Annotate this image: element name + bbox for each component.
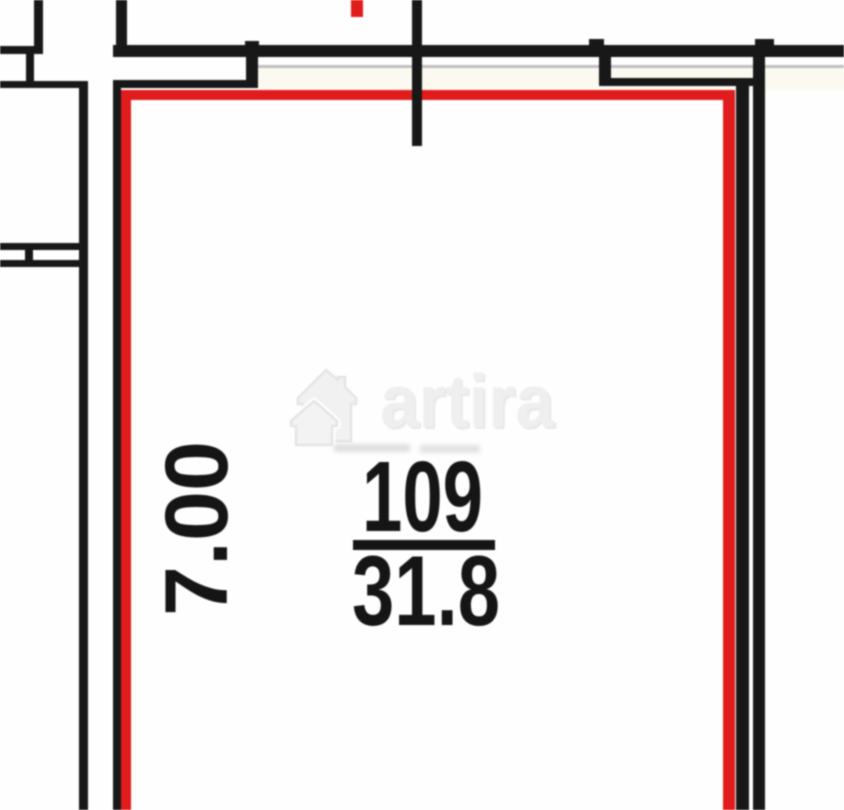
svg-text:7.00: 7.00 [146,441,246,616]
svg-text:31.8: 31.8 [352,535,500,646]
